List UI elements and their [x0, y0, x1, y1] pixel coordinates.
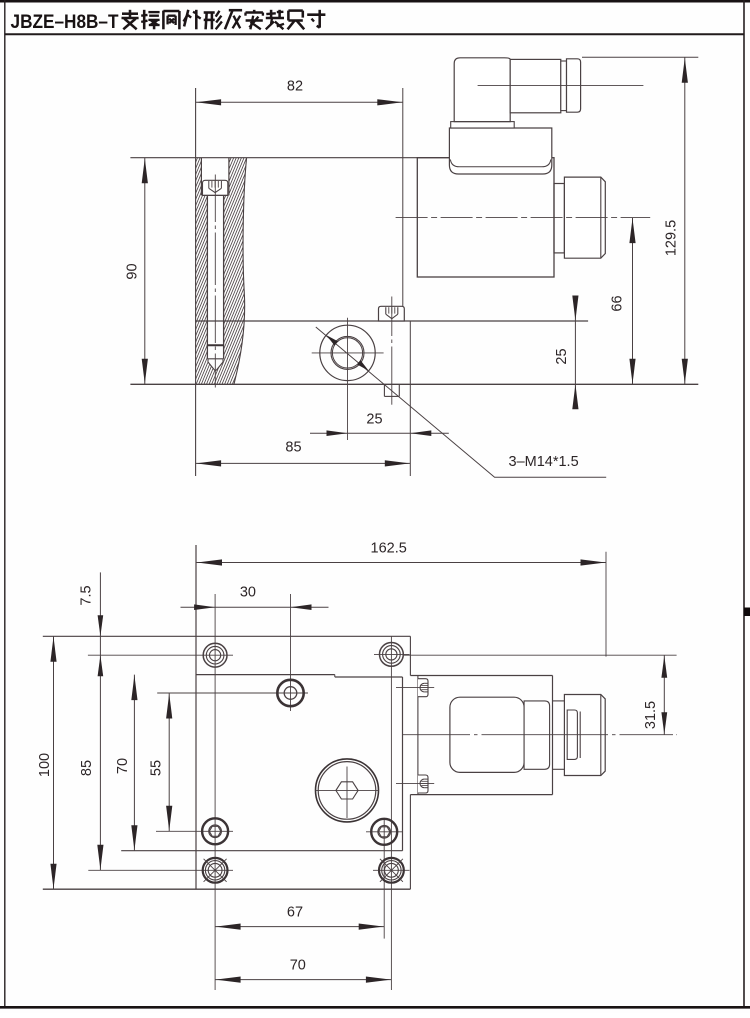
svg-text:66: 66 [610, 295, 626, 311]
svg-text:100: 100 [37, 753, 53, 777]
svg-text:JBZE–H8B–T: JBZE–H8B–T [11, 11, 119, 33]
svg-text:90: 90 [125, 263, 141, 279]
svg-text:70: 70 [115, 758, 131, 774]
svg-text:67: 67 [287, 905, 303, 921]
svg-text:31.5: 31.5 [643, 701, 659, 729]
svg-text:55: 55 [148, 760, 164, 776]
svg-text:30: 30 [240, 585, 256, 601]
svg-text:162.5: 162.5 [371, 541, 407, 557]
svg-text:7.5: 7.5 [78, 585, 94, 605]
svg-text:85: 85 [79, 760, 95, 776]
svg-text:25: 25 [554, 348, 570, 364]
svg-text:25: 25 [366, 411, 382, 427]
svg-text:3–M14*1.5: 3–M14*1.5 [509, 454, 579, 470]
svg-text:70: 70 [290, 958, 306, 974]
svg-text:85: 85 [285, 440, 301, 456]
svg-text:129.5: 129.5 [664, 220, 680, 256]
svg-text:82: 82 [287, 79, 303, 95]
